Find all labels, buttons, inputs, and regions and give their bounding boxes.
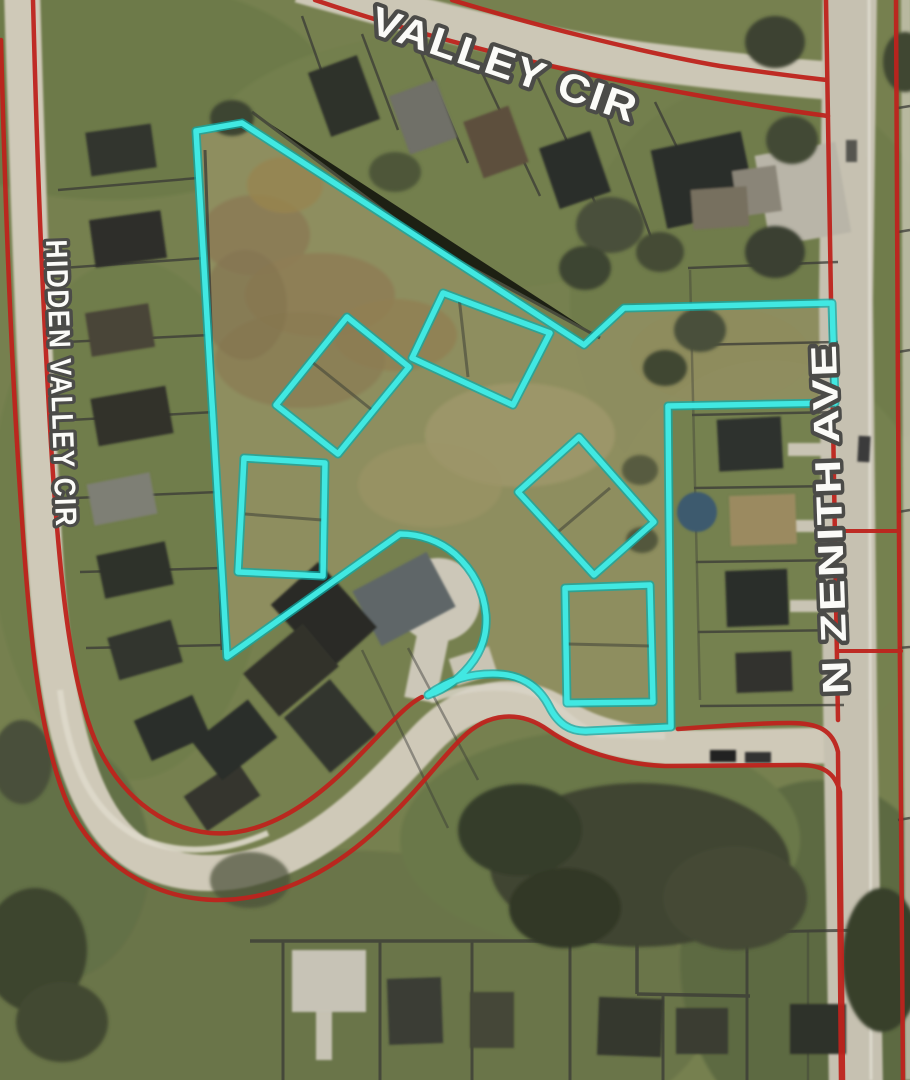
- aerial-parcel-map: VALLEY CIR HIDDEN VALLEY CIR N ZENITH AV…: [0, 0, 910, 1080]
- map-canvas: VALLEY CIR HIDDEN VALLEY CIR N ZENITH AV…: [0, 0, 910, 1080]
